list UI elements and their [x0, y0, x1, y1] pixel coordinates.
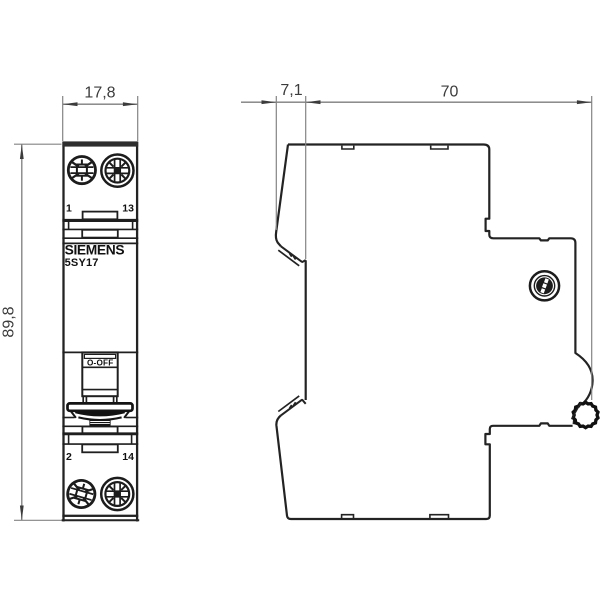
svg-text:17,8: 17,8: [84, 85, 115, 102]
svg-text:70: 70: [441, 84, 459, 101]
svg-text:SIEMENS: SIEMENS: [65, 242, 125, 257]
svg-text:O-OFF: O-OFF: [87, 359, 113, 368]
svg-text:2: 2: [66, 451, 72, 463]
svg-text:89,8: 89,8: [1, 306, 18, 337]
svg-text:14: 14: [122, 451, 134, 463]
svg-text:7,1: 7,1: [280, 82, 302, 99]
svg-text:13: 13: [122, 203, 134, 215]
svg-text:1: 1: [66, 203, 72, 215]
svg-text:5SY17: 5SY17: [65, 257, 99, 269]
